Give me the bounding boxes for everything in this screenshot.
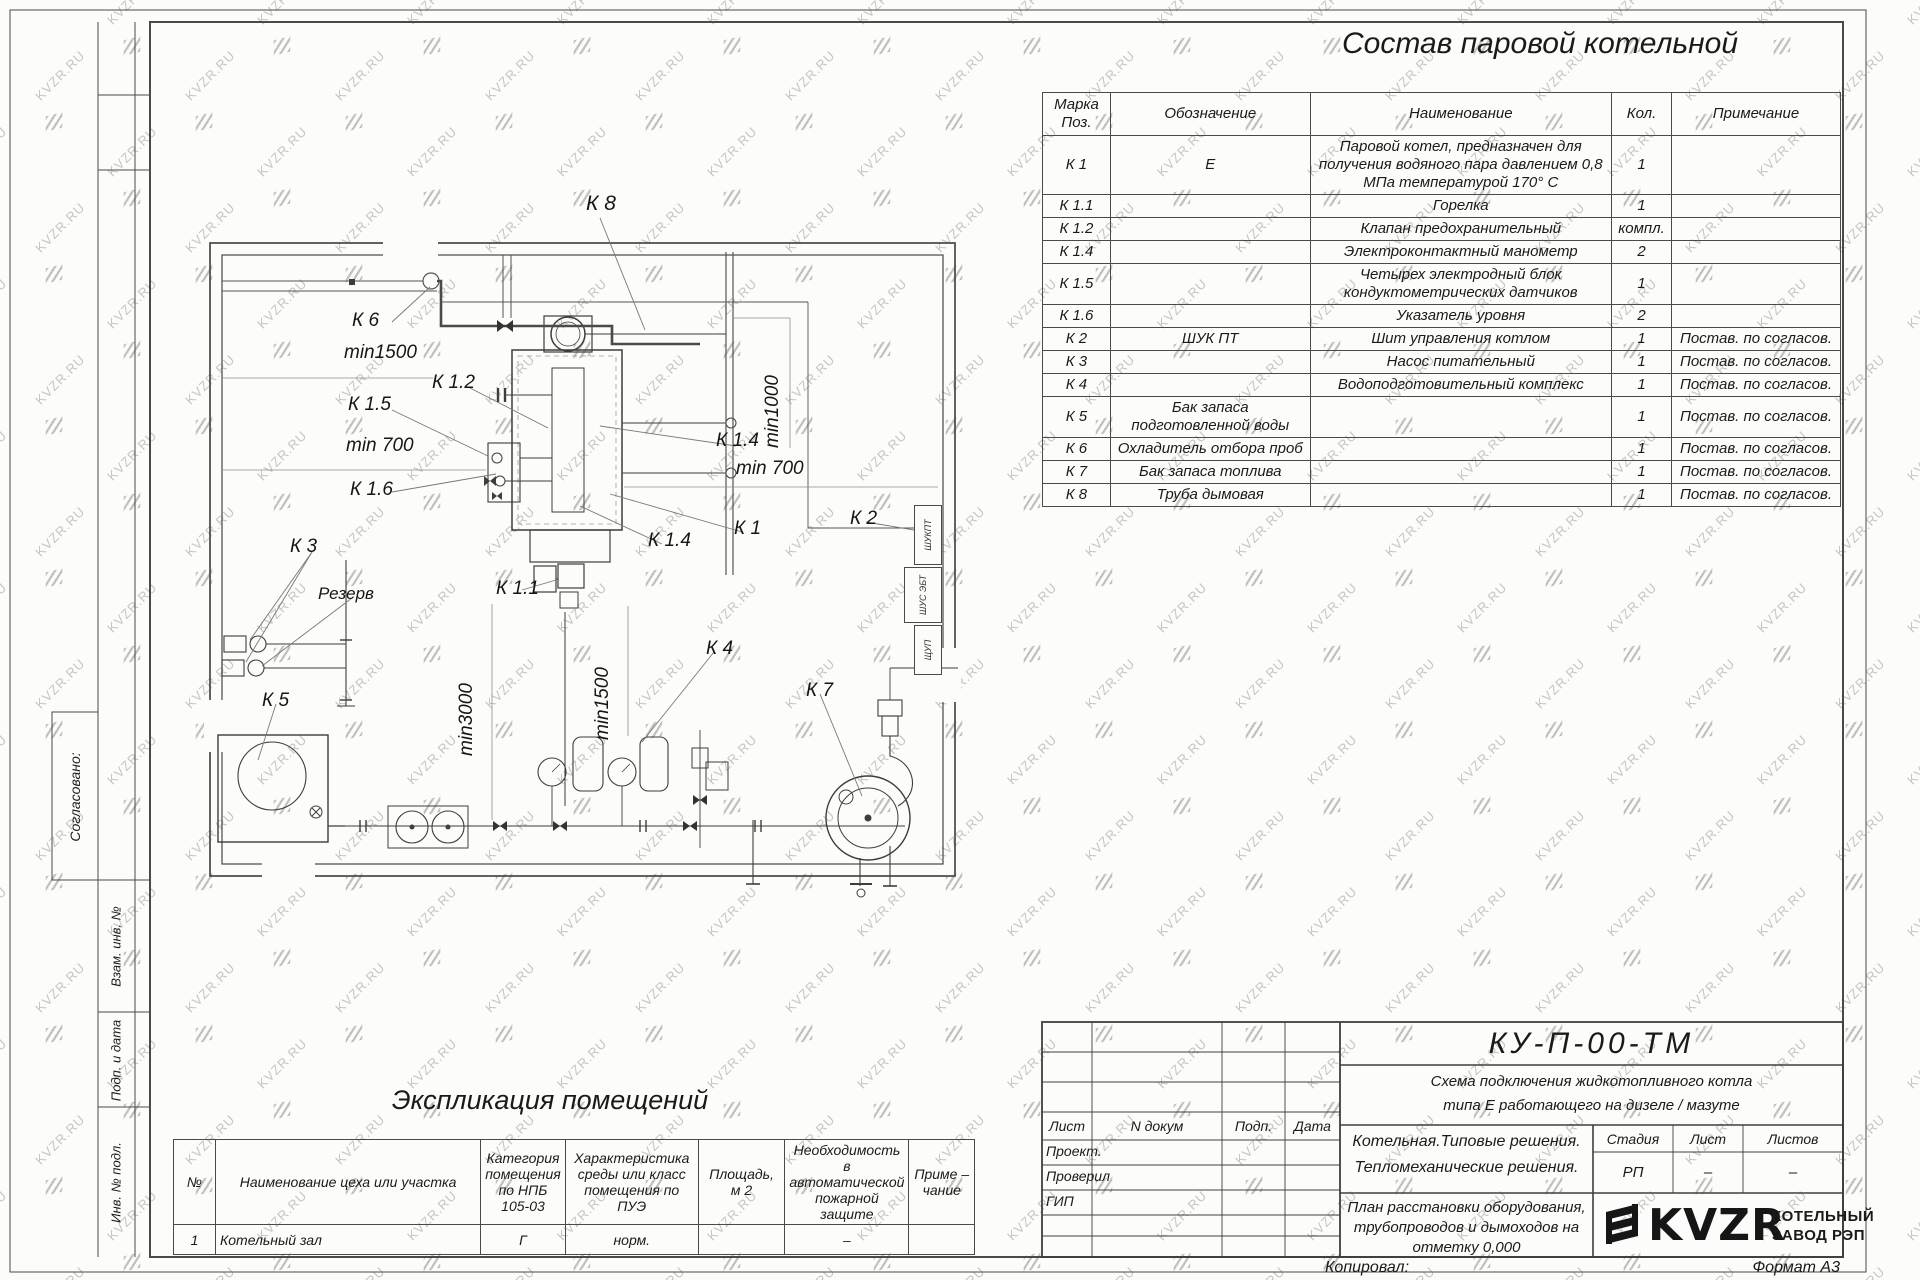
dimension-lines	[222, 318, 938, 820]
equipment-cell-qty: 2	[1612, 241, 1672, 264]
equipment-cell-qty: 1	[1612, 136, 1672, 195]
equipment-cell-mark: К 1.2	[1043, 218, 1111, 241]
equipment-cell-mark: К 1.6	[1043, 305, 1111, 328]
equipment-row: К 1.5Четырех электродный блок кондуктоме…	[1043, 264, 1841, 305]
role-proveril: Проверил	[1046, 1168, 1110, 1184]
equipment-cell-designation	[1110, 264, 1310, 305]
equipment-cell-mark: К 1.1	[1043, 195, 1111, 218]
plan-label: К 2	[850, 508, 877, 530]
sheet-title-line2: трубопроводов и дымоходов на	[1340, 1217, 1593, 1237]
drawing-title: Состав паровой котельной	[1320, 24, 1760, 64]
equipment-cell-name: Клапан предохранительный	[1310, 218, 1611, 241]
explication-cell: Котельный зал	[216, 1225, 481, 1255]
equipment-cell-name: Водоподготовительный комплекс	[1310, 374, 1611, 397]
plan-label: min3000	[456, 683, 478, 756]
equipment-cell-name: Горелка	[1310, 195, 1611, 218]
control-panel-label: ШУКПТ	[923, 519, 933, 550]
plan-label: min1500	[592, 667, 614, 740]
equipment-cell-note	[1671, 218, 1840, 241]
explication-cell	[698, 1225, 785, 1255]
equipment-cell-name: Шит управления котлом	[1310, 328, 1611, 351]
explication-header-cell: Приме – чание	[909, 1140, 975, 1225]
format-label: Формат А3	[1700, 1259, 1840, 1277]
plan-label: К 4	[706, 638, 733, 660]
equipment-cell-note	[1671, 136, 1840, 195]
equipment-cell-qty: 1	[1612, 484, 1672, 507]
equipment-cell-note: Постав. по согласов.	[1671, 461, 1840, 484]
plan-label: К 1.4	[648, 530, 691, 552]
equipment-cell-note: Постав. по согласов.	[1671, 397, 1840, 438]
equipment-table-body: К 1ЕПаровой котел, предназначен для полу…	[1043, 136, 1841, 507]
equipment-cell-designation: Охладитель отбора проб	[1110, 438, 1310, 461]
equipment-row: К 6Охладитель отбора проб1Постав. по сог…	[1043, 438, 1841, 461]
equipment-cell-qty: компл.	[1612, 218, 1672, 241]
project-line1: Котельная.Типовые решения.	[1340, 1130, 1593, 1154]
equipment-cell-designation	[1110, 305, 1310, 328]
sheet-title-line1: План расстановки оборудования,	[1340, 1197, 1593, 1217]
equipment-row: К 1ЕПаровой котел, предназначен для полу…	[1043, 136, 1841, 195]
company-name-line2: ЗАВОД РЭП	[1772, 1227, 1874, 1246]
equipment-row: К 1.2Клапан предохранительныйкомпл.	[1043, 218, 1841, 241]
equipment-cell-note: Постав. по согласов.	[1671, 438, 1840, 461]
equipment-cell-designation	[1110, 241, 1310, 264]
equipment-cell-mark: К 3	[1043, 351, 1111, 374]
equipment-cell-name: Паровой котел, предназначен для получени…	[1310, 136, 1611, 195]
k7-tank	[746, 668, 958, 897]
plan-label: К 1.4	[716, 430, 759, 452]
equipment-row: К 3Насос питательный1Постав. по согласов…	[1043, 351, 1841, 374]
equipment-cell-mark: К 4	[1043, 374, 1111, 397]
equipment-cell-qty: 1	[1612, 397, 1672, 438]
equipment-cell-designation	[1110, 374, 1310, 397]
equipment-cell-qty: 1	[1612, 195, 1672, 218]
stage-value-stadia: РП	[1593, 1152, 1673, 1193]
explication-header-cell: Необходимость в автоматической пожарной …	[785, 1140, 909, 1225]
stage-value-list: –	[1673, 1152, 1743, 1193]
stage-header-stadia: Стадия	[1593, 1125, 1673, 1152]
plan-label: К 1.5	[348, 394, 391, 416]
equipment-row: К 1.1Горелка1	[1043, 195, 1841, 218]
equipment-cell-qty: 2	[1612, 305, 1672, 328]
plan-label: К 1	[734, 518, 761, 540]
role-gip: ГИП	[1046, 1193, 1074, 1209]
plan-label: К 5	[262, 690, 289, 712]
equipment-cell-mark: К 6	[1043, 438, 1111, 461]
explication-table: №Наименование цеха или участкаКатегория …	[173, 1139, 975, 1255]
explication-cell: 1	[174, 1225, 216, 1255]
equipment-cell-designation: ШУК ПТ	[1110, 328, 1310, 351]
sheet-title-line3: отметку 0,000	[1340, 1237, 1593, 1257]
equipment-cell-mark: К 1.4	[1043, 241, 1111, 264]
explication-table-body: 1Котельный залГнорм.–	[174, 1225, 975, 1255]
equipment-cell-name	[1310, 484, 1611, 507]
explication-row: 1Котельный залГнорм.–	[174, 1225, 975, 1255]
explication-header-cell: Характеристика среды или класс помещения…	[565, 1140, 698, 1225]
equipment-cell-note	[1671, 195, 1840, 218]
equipment-row: К 5Бак запаса подготовленной воды1Постав…	[1043, 397, 1841, 438]
equipment-cell-qty: 1	[1612, 374, 1672, 397]
explication-cell: –	[785, 1225, 909, 1255]
plan-label: К 3	[290, 536, 317, 558]
equipment-cell-name	[1310, 397, 1611, 438]
explication-header-cell: Площадь, м 2	[698, 1140, 785, 1225]
company-name: КОТЕЛЬНЫЙ ЗАВОД РЭП	[1772, 1208, 1874, 1246]
equipment-cell-name: Указатель уровня	[1310, 305, 1611, 328]
col-qty: Кол.	[1612, 93, 1672, 136]
equipment-cell-note: Постав. по согласов.	[1671, 484, 1840, 507]
margin-label-soglasovano: Согласовано:	[67, 747, 83, 847]
doc-number: КУ-П-00-ТМ	[1340, 1022, 1843, 1065]
stamp-header-list: Лист	[1042, 1112, 1092, 1140]
explication-header-cell: №	[174, 1140, 216, 1225]
role-proekt: Проект.	[1046, 1143, 1102, 1159]
k3-pumps	[222, 560, 355, 706]
equipment-cell-mark: К 5	[1043, 397, 1111, 438]
margin-label-vzam: Взам. инв. №	[109, 897, 124, 997]
equipment-cell-name: Насос питательный	[1310, 351, 1611, 374]
stage-value-listov: –	[1743, 1152, 1843, 1193]
equipment-cell-note	[1671, 305, 1840, 328]
control-panel-3: ЩУП	[914, 625, 942, 675]
plan-label: min 700	[346, 435, 414, 457]
equipment-cell-note: Постав. по согласов.	[1671, 351, 1840, 374]
control-panel-label: ШУС ЭБТ	[918, 575, 928, 615]
equipment-cell-note	[1671, 264, 1840, 305]
stamp-header-podp: Подп.	[1222, 1112, 1285, 1140]
plan-label: К 6	[352, 310, 379, 332]
plan-label: min1500	[344, 342, 417, 364]
stamp-header-ndoc: N докум	[1092, 1112, 1222, 1140]
equipment-table-header: Марка Поз. Обозначение Наименование Кол.…	[1043, 93, 1841, 136]
explication-table-header: №Наименование цеха или участкаКатегория …	[174, 1140, 975, 1225]
chimney-k8	[726, 252, 733, 575]
plan-label: К 8	[586, 192, 616, 216]
control-panel-2: ШУС ЭБТ	[904, 567, 942, 623]
equipment-row: К 1.6Указатель уровня2	[1043, 305, 1841, 328]
col-mark: Марка Поз.	[1043, 93, 1111, 136]
equipment-cell-qty: 1	[1612, 461, 1672, 484]
plan-label: Резерв	[318, 584, 374, 604]
scheme-title-line2: типа Е работающего на дизеле / мазуте	[1340, 1092, 1843, 1118]
room-walls	[204, 237, 961, 882]
scheme-title-line1: Схема подключения жидкотопливного котла	[1340, 1068, 1843, 1094]
control-panel-label: ЩУП	[923, 640, 933, 661]
equipment-cell-designation: Бак запаса топлива	[1110, 461, 1310, 484]
company-name-line1: КОТЕЛЬНЫЙ	[1772, 1208, 1874, 1227]
explication-cell	[909, 1225, 975, 1255]
drawing-sheet: KVZR.RUKVZR.RUKVZR.RUKVZR.RUKVZR.RUKVZR.…	[0, 0, 1920, 1280]
stamp-header-data: Дата	[1285, 1112, 1340, 1140]
equipment-row: К 2ШУК ПТШит управления котлом1Постав. п…	[1043, 328, 1841, 351]
equipment-cell-name: Четырех электродный блок кондуктометриче…	[1310, 264, 1611, 305]
equipment-cell-designation	[1110, 218, 1310, 241]
kvzr-logo-text: KVZR	[1648, 1200, 1786, 1251]
equipment-cell-note: Постав. по согласов.	[1671, 328, 1840, 351]
equipment-cell-designation	[1110, 351, 1310, 374]
stage-header-list: Лист	[1673, 1125, 1743, 1152]
margin-label-podp: Подп. и дата	[109, 1011, 124, 1111]
equipment-row: К 4Водоподготовительный комплекс1Постав.…	[1043, 374, 1841, 397]
plan-label: К 1.1	[496, 578, 539, 600]
margin-label-inv: Инв. № подл.	[109, 1133, 124, 1233]
equipment-cell-qty: 1	[1612, 438, 1672, 461]
plan-label: К 7	[806, 680, 833, 702]
equipment-cell-name	[1310, 438, 1611, 461]
explication-header-cell: Наименование цеха или участка	[216, 1140, 481, 1225]
equipment-cell-name: Электроконтактный манометр	[1310, 241, 1611, 264]
explication-header-cell: Категория помещения по НПБ 105-03	[481, 1140, 566, 1225]
k5-tank	[218, 735, 345, 842]
equipment-cell-designation: Бак запаса подготовленной воды	[1110, 397, 1310, 438]
equipment-cell-name	[1310, 461, 1611, 484]
kvzr-logo-icon	[1606, 1204, 1638, 1244]
equipment-cell-qty: 1	[1612, 351, 1672, 374]
equipment-cell-qty: 1	[1612, 328, 1672, 351]
col-note: Примечание	[1671, 93, 1840, 136]
equipment-table: Марка Поз. Обозначение Наименование Кол.…	[1042, 92, 1841, 507]
equipment-row: К 1.4Электроконтактный манометр2	[1043, 241, 1841, 264]
control-panel-1: ШУКПТ	[914, 505, 942, 565]
equipment-cell-qty: 1	[1612, 264, 1672, 305]
equipment-cell-designation	[1110, 195, 1310, 218]
col-name: Наименование	[1310, 93, 1611, 136]
equipment-cell-note	[1671, 241, 1840, 264]
project-line2: Тепломеханические решения.	[1340, 1156, 1593, 1180]
col-designation: Обозначение	[1110, 93, 1310, 136]
stage-header-listov: Листов	[1743, 1125, 1843, 1152]
equipment-row: К 7Бак запаса топлива1Постав. по согласо…	[1043, 461, 1841, 484]
k4-complex	[345, 730, 905, 848]
equipment-cell-mark: К 1	[1043, 136, 1111, 195]
plan-label: min 700	[736, 458, 804, 480]
leader-lines	[246, 218, 914, 796]
plan-label: К 1.2	[432, 372, 475, 394]
explication-cell: Г	[481, 1225, 566, 1255]
equipment-row: К 8Труба дымовая1Постав. по согласов.	[1043, 484, 1841, 507]
copied-label: Копировал:	[1325, 1259, 1409, 1277]
equipment-cell-mark: К 7	[1043, 461, 1111, 484]
equipment-cell-designation: Е	[1110, 136, 1310, 195]
equipment-cell-mark: К 2	[1043, 328, 1111, 351]
equipment-cell-mark: К 1.5	[1043, 264, 1111, 305]
equipment-cell-designation: Труба дымовая	[1110, 484, 1310, 507]
plan-label: min1000	[762, 375, 784, 448]
explication-cell: норм.	[565, 1225, 698, 1255]
explication-title: Экспликация помещений	[330, 1082, 770, 1118]
plan-label: К 1.6	[350, 479, 393, 501]
equipment-cell-note: Постав. по согласов.	[1671, 374, 1840, 397]
equipment-cell-mark: К 8	[1043, 484, 1111, 507]
